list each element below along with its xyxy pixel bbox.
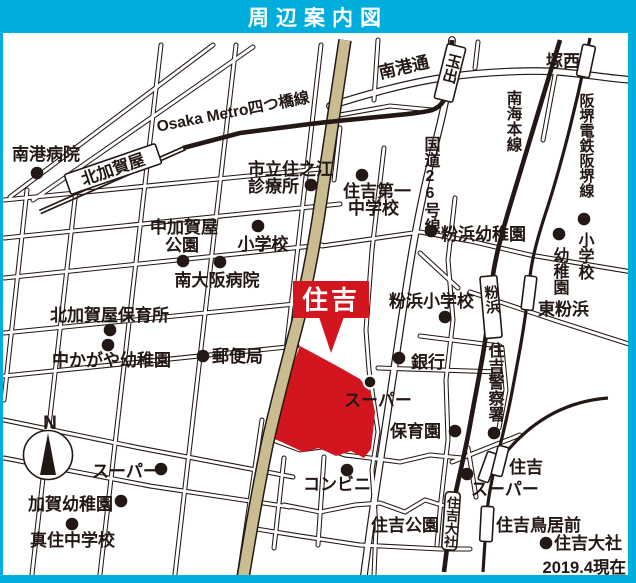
poi-dot (66, 518, 79, 531)
poi-dot (197, 350, 210, 363)
poi-dot (102, 339, 115, 352)
poi-label: 南港病院 (12, 144, 80, 164)
station-label: 東粉浜 (538, 299, 589, 319)
poi-label: 住吉公園 (371, 515, 439, 535)
poi-label: 中加賀屋 (150, 217, 218, 237)
poi-dot (553, 228, 566, 241)
poi-label: 小学校 (238, 234, 290, 254)
poi-label: 住吉第一 (343, 181, 411, 201)
poi-dot (305, 179, 318, 192)
poi-label: 粉浜小学校 (389, 291, 475, 311)
poi-dot (439, 311, 452, 324)
rail-label: 阪堺電鉄阪堺線 (578, 93, 595, 199)
poi-dot (364, 376, 377, 389)
poi-label: 中かがや幼稚園 (52, 350, 171, 370)
area-map: 北加賀屋 玉出 粉浜 (0, 0, 636, 583)
poi-label: 北加賀屋保育所 (50, 305, 169, 325)
poi-label: 銀行 (411, 352, 445, 372)
poi-label: スーパー (344, 391, 412, 410)
poi-label: 加賀幼稚園 (27, 494, 113, 514)
poi-label: 市立住之江 (248, 159, 333, 179)
poi-dot (252, 220, 265, 233)
poi-dot (31, 167, 44, 180)
poi-label: 郵便局 (212, 346, 263, 366)
station-label: 粉浜 (482, 283, 501, 316)
poi-label: 中学校 (348, 198, 400, 218)
poi-label: 保育園 (389, 421, 441, 441)
poi-dot (115, 495, 128, 508)
poi-dot (356, 169, 369, 182)
toriimae-station-box (480, 506, 494, 542)
poi-dot (393, 352, 406, 365)
poi-dot (177, 255, 190, 268)
station-label: 塚西 (546, 52, 580, 71)
callout-label: 住吉 (302, 285, 360, 315)
poi-label: 南大阪病院 (175, 270, 260, 290)
rail-label: 南海本線 (505, 89, 523, 154)
poi-label: 住吉大社 (554, 533, 622, 553)
poi-dot (104, 324, 117, 337)
compass-n: N (43, 413, 57, 434)
poi-label: スーパー (92, 462, 160, 481)
road-label: 国道26号線 (422, 136, 441, 235)
poi-dot (461, 468, 474, 481)
poi-label: 小学校 (576, 232, 595, 281)
poi-dot (488, 427, 501, 440)
poi-dot (449, 425, 462, 438)
poi-label: 粉浜幼稚園 (441, 224, 526, 244)
poi-dot (578, 213, 591, 226)
poi-label: スーパー (471, 480, 539, 499)
poi-label: コンビニ (303, 475, 371, 494)
as-of-date: 2019.4現在 (543, 557, 626, 577)
poi-dot (540, 537, 553, 550)
station-label: 住吉 (509, 457, 543, 477)
poi-label: 診療所 (248, 176, 299, 196)
poi-dot (214, 256, 227, 269)
map-frame: 周辺案内図 (0, 0, 636, 583)
station-label: 住吉鳥居前 (496, 515, 581, 535)
poi-label: 真住中学校 (30, 530, 116, 550)
poi-label: 幼稚園 (551, 246, 570, 296)
poi-label: 公園 (165, 236, 199, 255)
